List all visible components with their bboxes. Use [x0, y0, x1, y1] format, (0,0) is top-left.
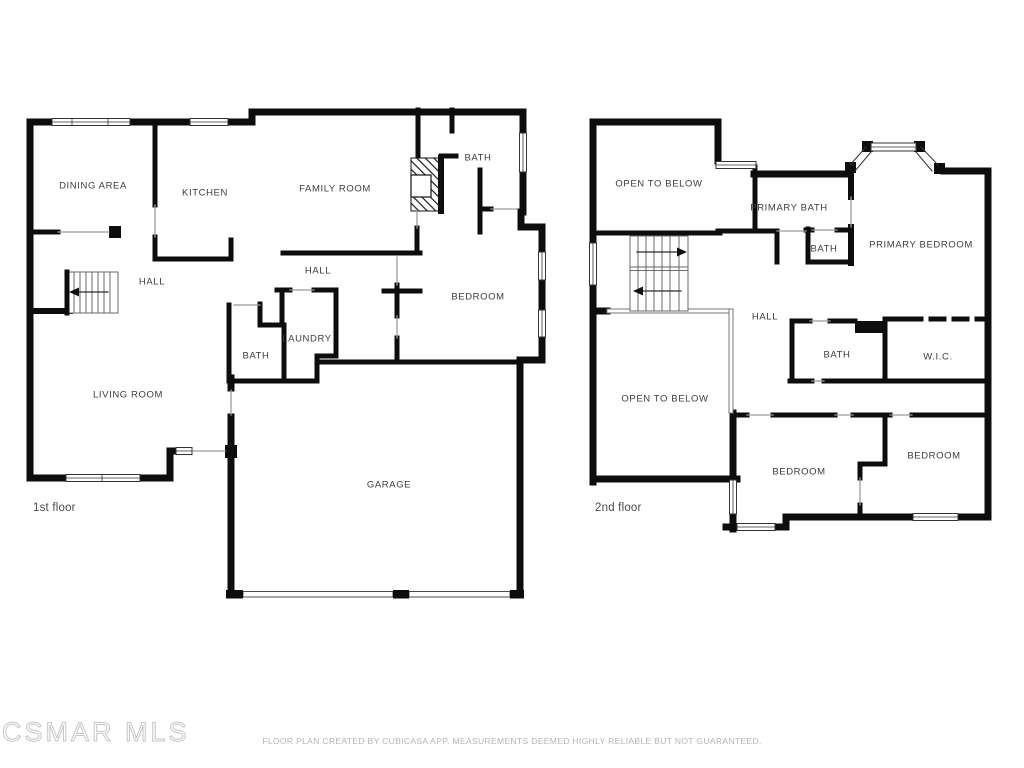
room-labels-layer: DINING AREAKITCHENFAMILY ROOMBATHHALLHAL… [0, 0, 1024, 768]
room-label: PRIMARY BEDROOM [869, 240, 973, 251]
room-label: LAUNDRY [282, 334, 331, 345]
room-label: OPEN TO BELOW [621, 394, 708, 405]
room-label: BATH [464, 153, 491, 164]
footer-disclaimer: FLOOR PLAN CREATED BY CUBICASA APP. MEAS… [262, 736, 761, 746]
room-label: DINING AREA [59, 181, 127, 192]
floor-plan-page: DINING AREAKITCHENFAMILY ROOMBATHHALLHAL… [0, 0, 1024, 768]
room-label: PRIMARY BATH [750, 203, 827, 214]
mls-watermark: CSMAR MLS [2, 717, 190, 748]
room-label: HALL [305, 266, 331, 277]
room-label: HALL [139, 277, 165, 288]
room-label: LIVING ROOM [93, 390, 163, 401]
room-label: BATH [242, 351, 269, 362]
room-label: BATH [810, 244, 837, 255]
room-label: W.I.C. [923, 352, 952, 363]
room-label: BEDROOM [772, 467, 825, 478]
room-label: GARAGE [367, 480, 411, 491]
second-floor-title: 2nd floor [595, 502, 642, 514]
room-label: OPEN TO BELOW [615, 179, 702, 190]
first-floor-title: 1st floor [33, 502, 76, 514]
room-label: BEDROOM [907, 451, 960, 462]
room-label: BEDROOM [451, 292, 504, 303]
room-label: BATH [823, 350, 850, 361]
room-label: FAMILY ROOM [299, 184, 371, 195]
room-label: KITCHEN [182, 188, 228, 199]
room-label: HALL [752, 312, 778, 323]
